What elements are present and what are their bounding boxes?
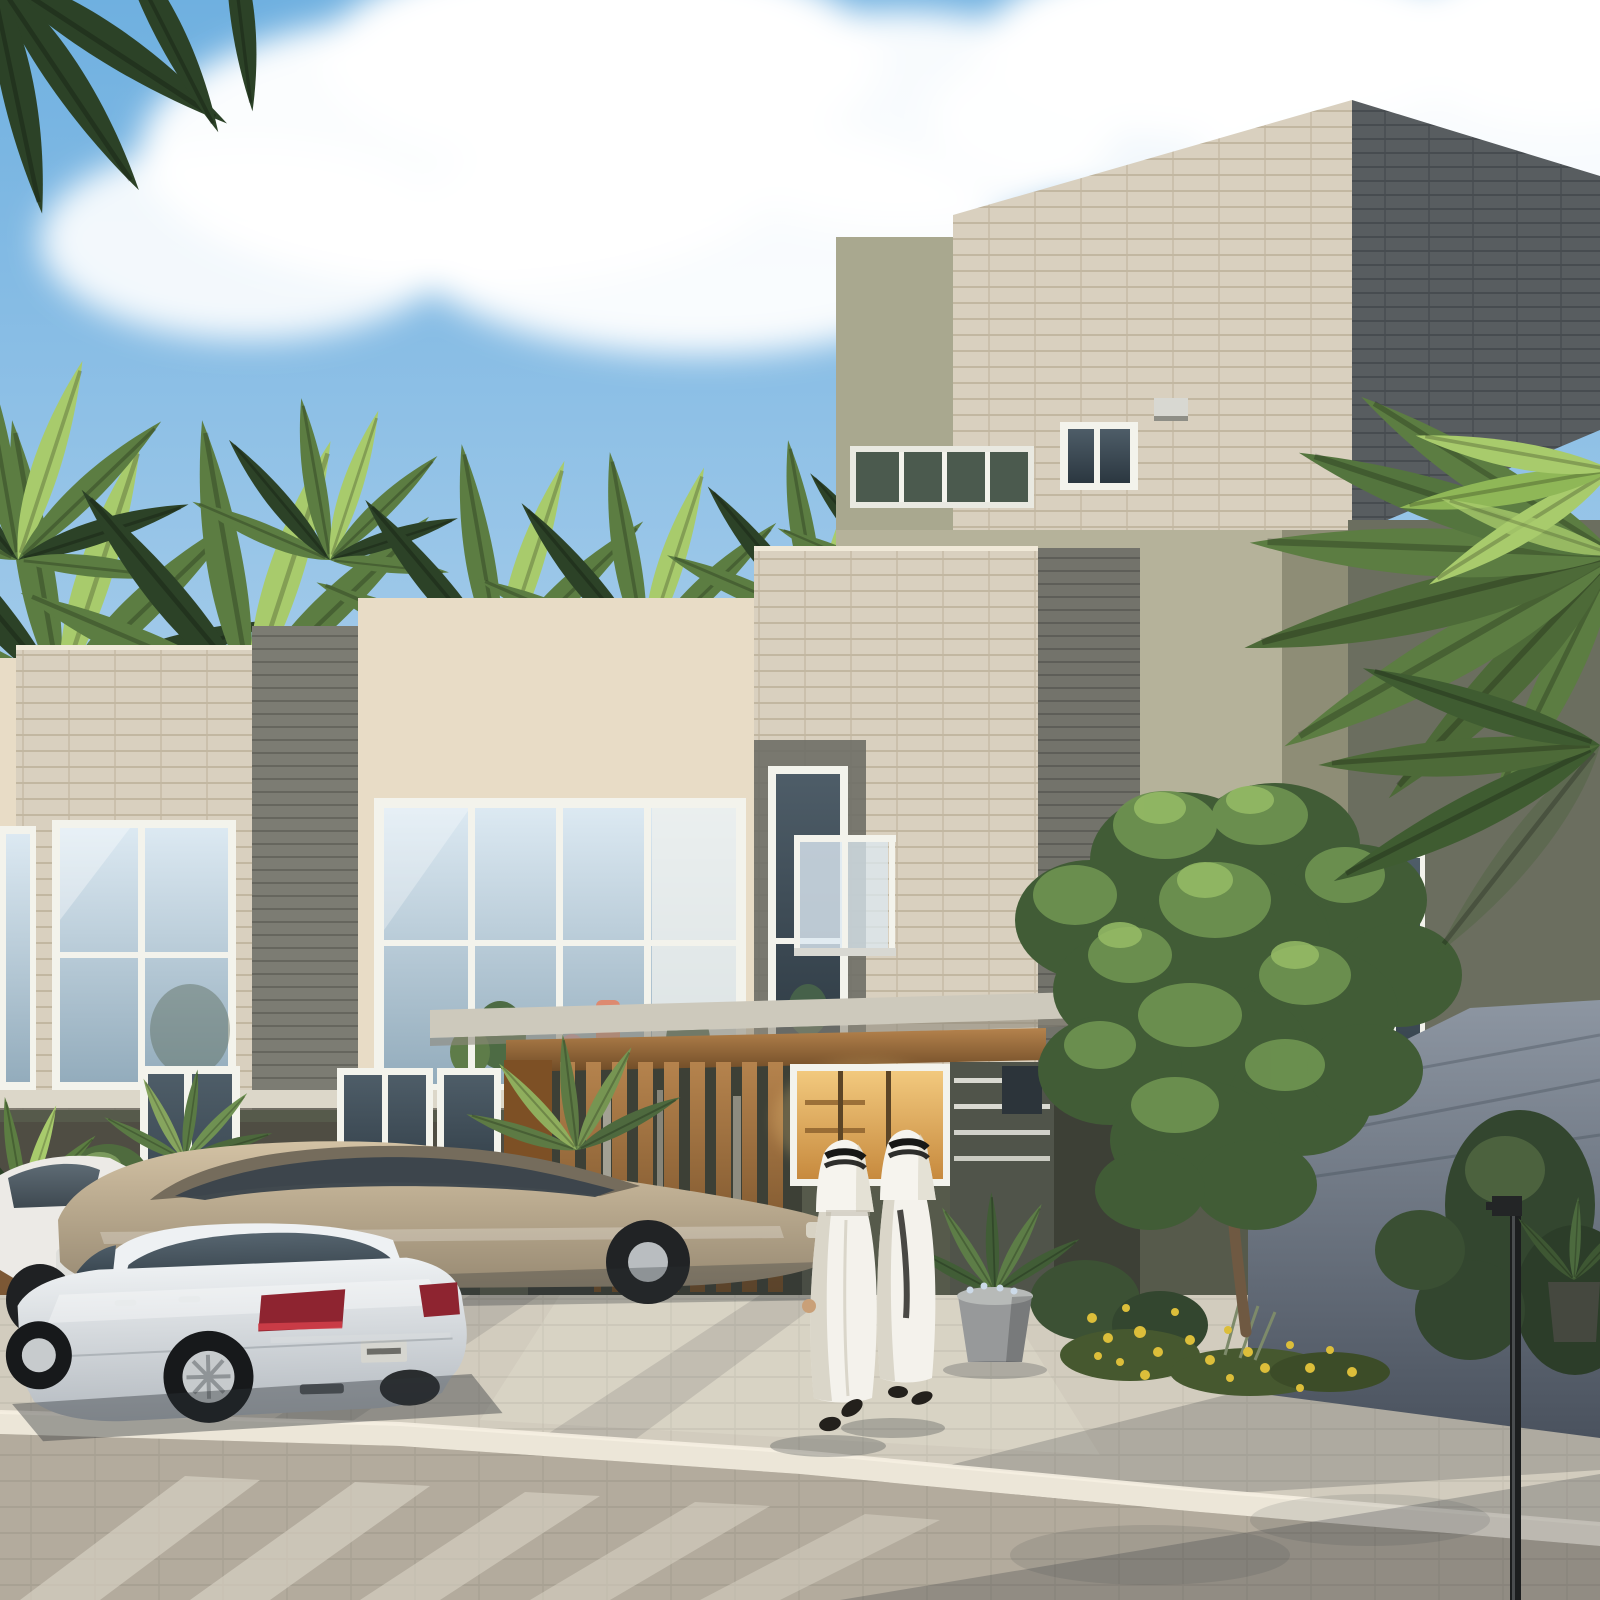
window-glass	[6, 834, 30, 1082]
flower	[1205, 1355, 1215, 1365]
interior-shadow	[150, 984, 230, 1076]
lit-window	[773, 1060, 963, 1186]
stone-block-cap	[754, 546, 1038, 551]
mirror-window	[1002, 1066, 1042, 1114]
flower	[1116, 1358, 1124, 1366]
planter-pot	[1548, 1282, 1600, 1342]
planter-shadow	[943, 1361, 1047, 1379]
shrub-blob	[1375, 1210, 1465, 1290]
person-shadow	[770, 1435, 886, 1457]
canopy-blob	[1245, 1039, 1325, 1091]
cloud	[40, 140, 460, 340]
shrub-highlight	[1465, 1136, 1545, 1204]
lamp-pole	[1510, 1206, 1521, 1600]
flower	[1224, 1326, 1232, 1334]
balcony-post	[889, 840, 895, 952]
flower	[1171, 1308, 1179, 1316]
flower	[1286, 1341, 1294, 1349]
clerestory-mullion	[942, 452, 947, 502]
wall-lamp-shade	[1154, 416, 1188, 421]
shadow-dapple	[1010, 1525, 1290, 1585]
canopy-blob	[1134, 792, 1186, 824]
flower	[1326, 1346, 1334, 1354]
lamp-pole-highlight	[1512, 1206, 1515, 1600]
floret	[1011, 1288, 1018, 1295]
flower	[1122, 1304, 1130, 1312]
hand	[802, 1299, 816, 1313]
interior-shelf	[805, 1100, 865, 1105]
louver-bar	[954, 1156, 1050, 1161]
canopy-blob	[1131, 1077, 1219, 1133]
license-plate-text	[367, 1348, 401, 1355]
person-shadow	[841, 1418, 945, 1438]
flower	[1305, 1363, 1315, 1373]
interior-shelf	[805, 1128, 865, 1133]
floret	[997, 1285, 1004, 1292]
flower	[1260, 1363, 1270, 1373]
lamp-arm	[1486, 1202, 1496, 1210]
lamp-head	[1492, 1196, 1522, 1216]
canopy-blob	[1177, 862, 1233, 898]
flower	[1103, 1333, 1113, 1343]
canopy-blob	[1095, 1150, 1205, 1230]
flower	[1153, 1347, 1163, 1357]
flower	[1094, 1352, 1102, 1360]
canopy-blob	[1064, 1021, 1136, 1069]
flower	[1243, 1347, 1253, 1357]
flower-foliage	[1270, 1352, 1390, 1392]
neck-shadow	[826, 1210, 870, 1216]
foot	[888, 1386, 908, 1398]
canopy-blob	[1098, 922, 1142, 948]
upper-window-1	[52, 820, 236, 1090]
gray-pillar-texture	[252, 626, 358, 1110]
balcony-glass	[800, 842, 842, 950]
canopy-blob	[1138, 983, 1242, 1047]
canopy-blob	[1033, 865, 1117, 925]
canopy-blob	[1307, 1024, 1423, 1116]
balcony-base	[794, 948, 896, 956]
flower	[1185, 1335, 1195, 1345]
window-rail	[60, 952, 228, 958]
shadow-dapple	[1250, 1494, 1490, 1546]
car-taillight	[419, 1282, 460, 1317]
flower	[1226, 1374, 1234, 1382]
scene-root: Modern villa community street view	[0, 0, 1600, 1600]
stone-block-cap	[16, 645, 252, 650]
flower	[1134, 1326, 1146, 1338]
canopy-blob	[1193, 1140, 1317, 1230]
window-rail	[384, 940, 736, 946]
balcony-post	[843, 840, 848, 952]
tower-window-mullion	[1094, 429, 1100, 483]
floret	[981, 1283, 988, 1290]
rendering-canvas: Modern villa community street view	[0, 0, 1600, 1600]
louver-bar	[954, 1130, 1050, 1135]
upper-window-partial	[0, 826, 36, 1090]
flower	[1087, 1313, 1097, 1323]
canopy-blob	[1226, 786, 1274, 814]
canopy-blob	[1271, 941, 1319, 969]
flower	[1140, 1370, 1150, 1380]
flower	[1296, 1384, 1304, 1392]
glass-balcony	[794, 835, 896, 956]
flower	[1347, 1367, 1357, 1377]
balcony-glass	[848, 842, 888, 950]
clerestory-mullion	[985, 452, 990, 502]
clerestory-mullion	[899, 452, 904, 502]
balcony-post	[794, 835, 800, 953]
floret	[967, 1287, 974, 1294]
